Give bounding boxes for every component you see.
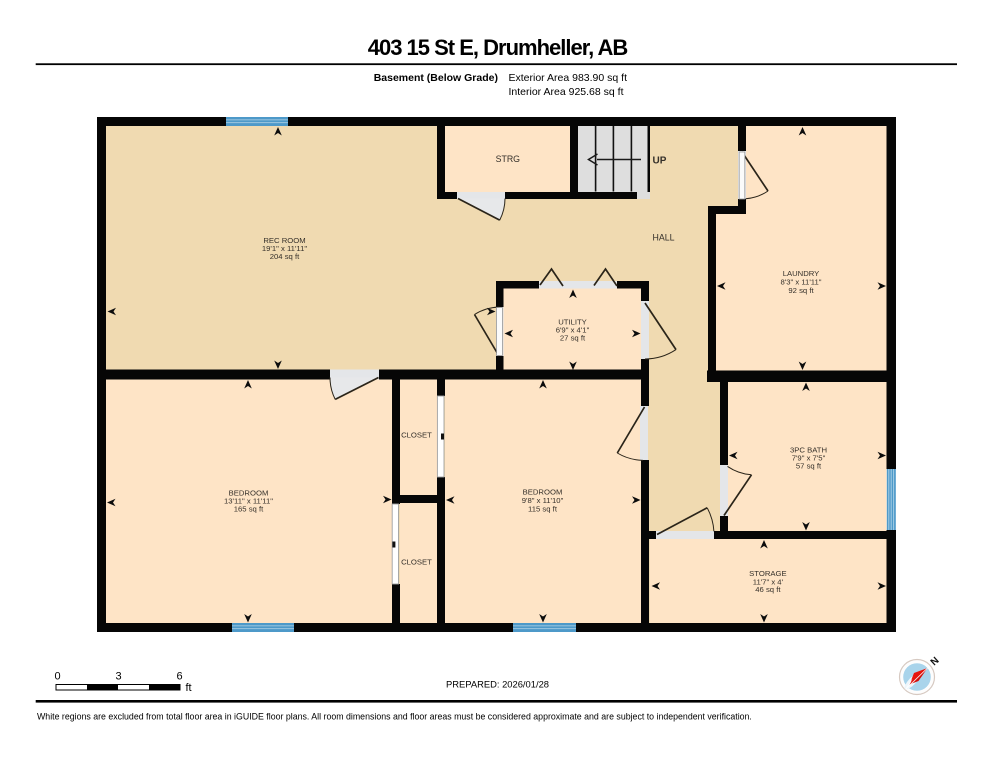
svg-text:CLOSET: CLOSET [401, 558, 432, 567]
svg-text:46 sq ft: 46 sq ft [755, 585, 781, 594]
svg-text:3: 3 [115, 671, 121, 683]
svg-text:Exterior Area 983.90 sq ft: Exterior Area 983.90 sq ft [509, 72, 628, 84]
svg-text:403 15 St E, Drumheller, AB: 403 15 St E, Drumheller, AB [368, 35, 628, 60]
svg-text:ft: ft [186, 682, 192, 694]
svg-text:PREPARED: 2026/01/28: PREPARED: 2026/01/28 [446, 679, 549, 690]
svg-text:57 sq ft: 57 sq ft [796, 461, 822, 470]
svg-text:Interior Area 925.68 sq ft: Interior Area 925.68 sq ft [509, 86, 624, 98]
svg-text:White regions are excluded fro: White regions are excluded from total fl… [37, 712, 752, 722]
svg-text:HALL: HALL [652, 233, 674, 243]
svg-text:27 sq ft: 27 sq ft [560, 334, 586, 343]
svg-text:115 sq ft: 115 sq ft [528, 505, 558, 514]
svg-text:204 sq ft: 204 sq ft [270, 252, 300, 261]
svg-text:UP: UP [653, 156, 667, 167]
svg-text:0: 0 [54, 671, 60, 683]
svg-text:6: 6 [176, 671, 182, 683]
svg-text:92 sq ft: 92 sq ft [788, 286, 814, 295]
svg-text:Basement (Below Grade): Basement (Below Grade) [374, 72, 498, 84]
svg-text:STRG: STRG [496, 154, 521, 164]
svg-text:165 sq ft: 165 sq ft [234, 505, 264, 514]
svg-text:CLOSET: CLOSET [401, 431, 432, 440]
